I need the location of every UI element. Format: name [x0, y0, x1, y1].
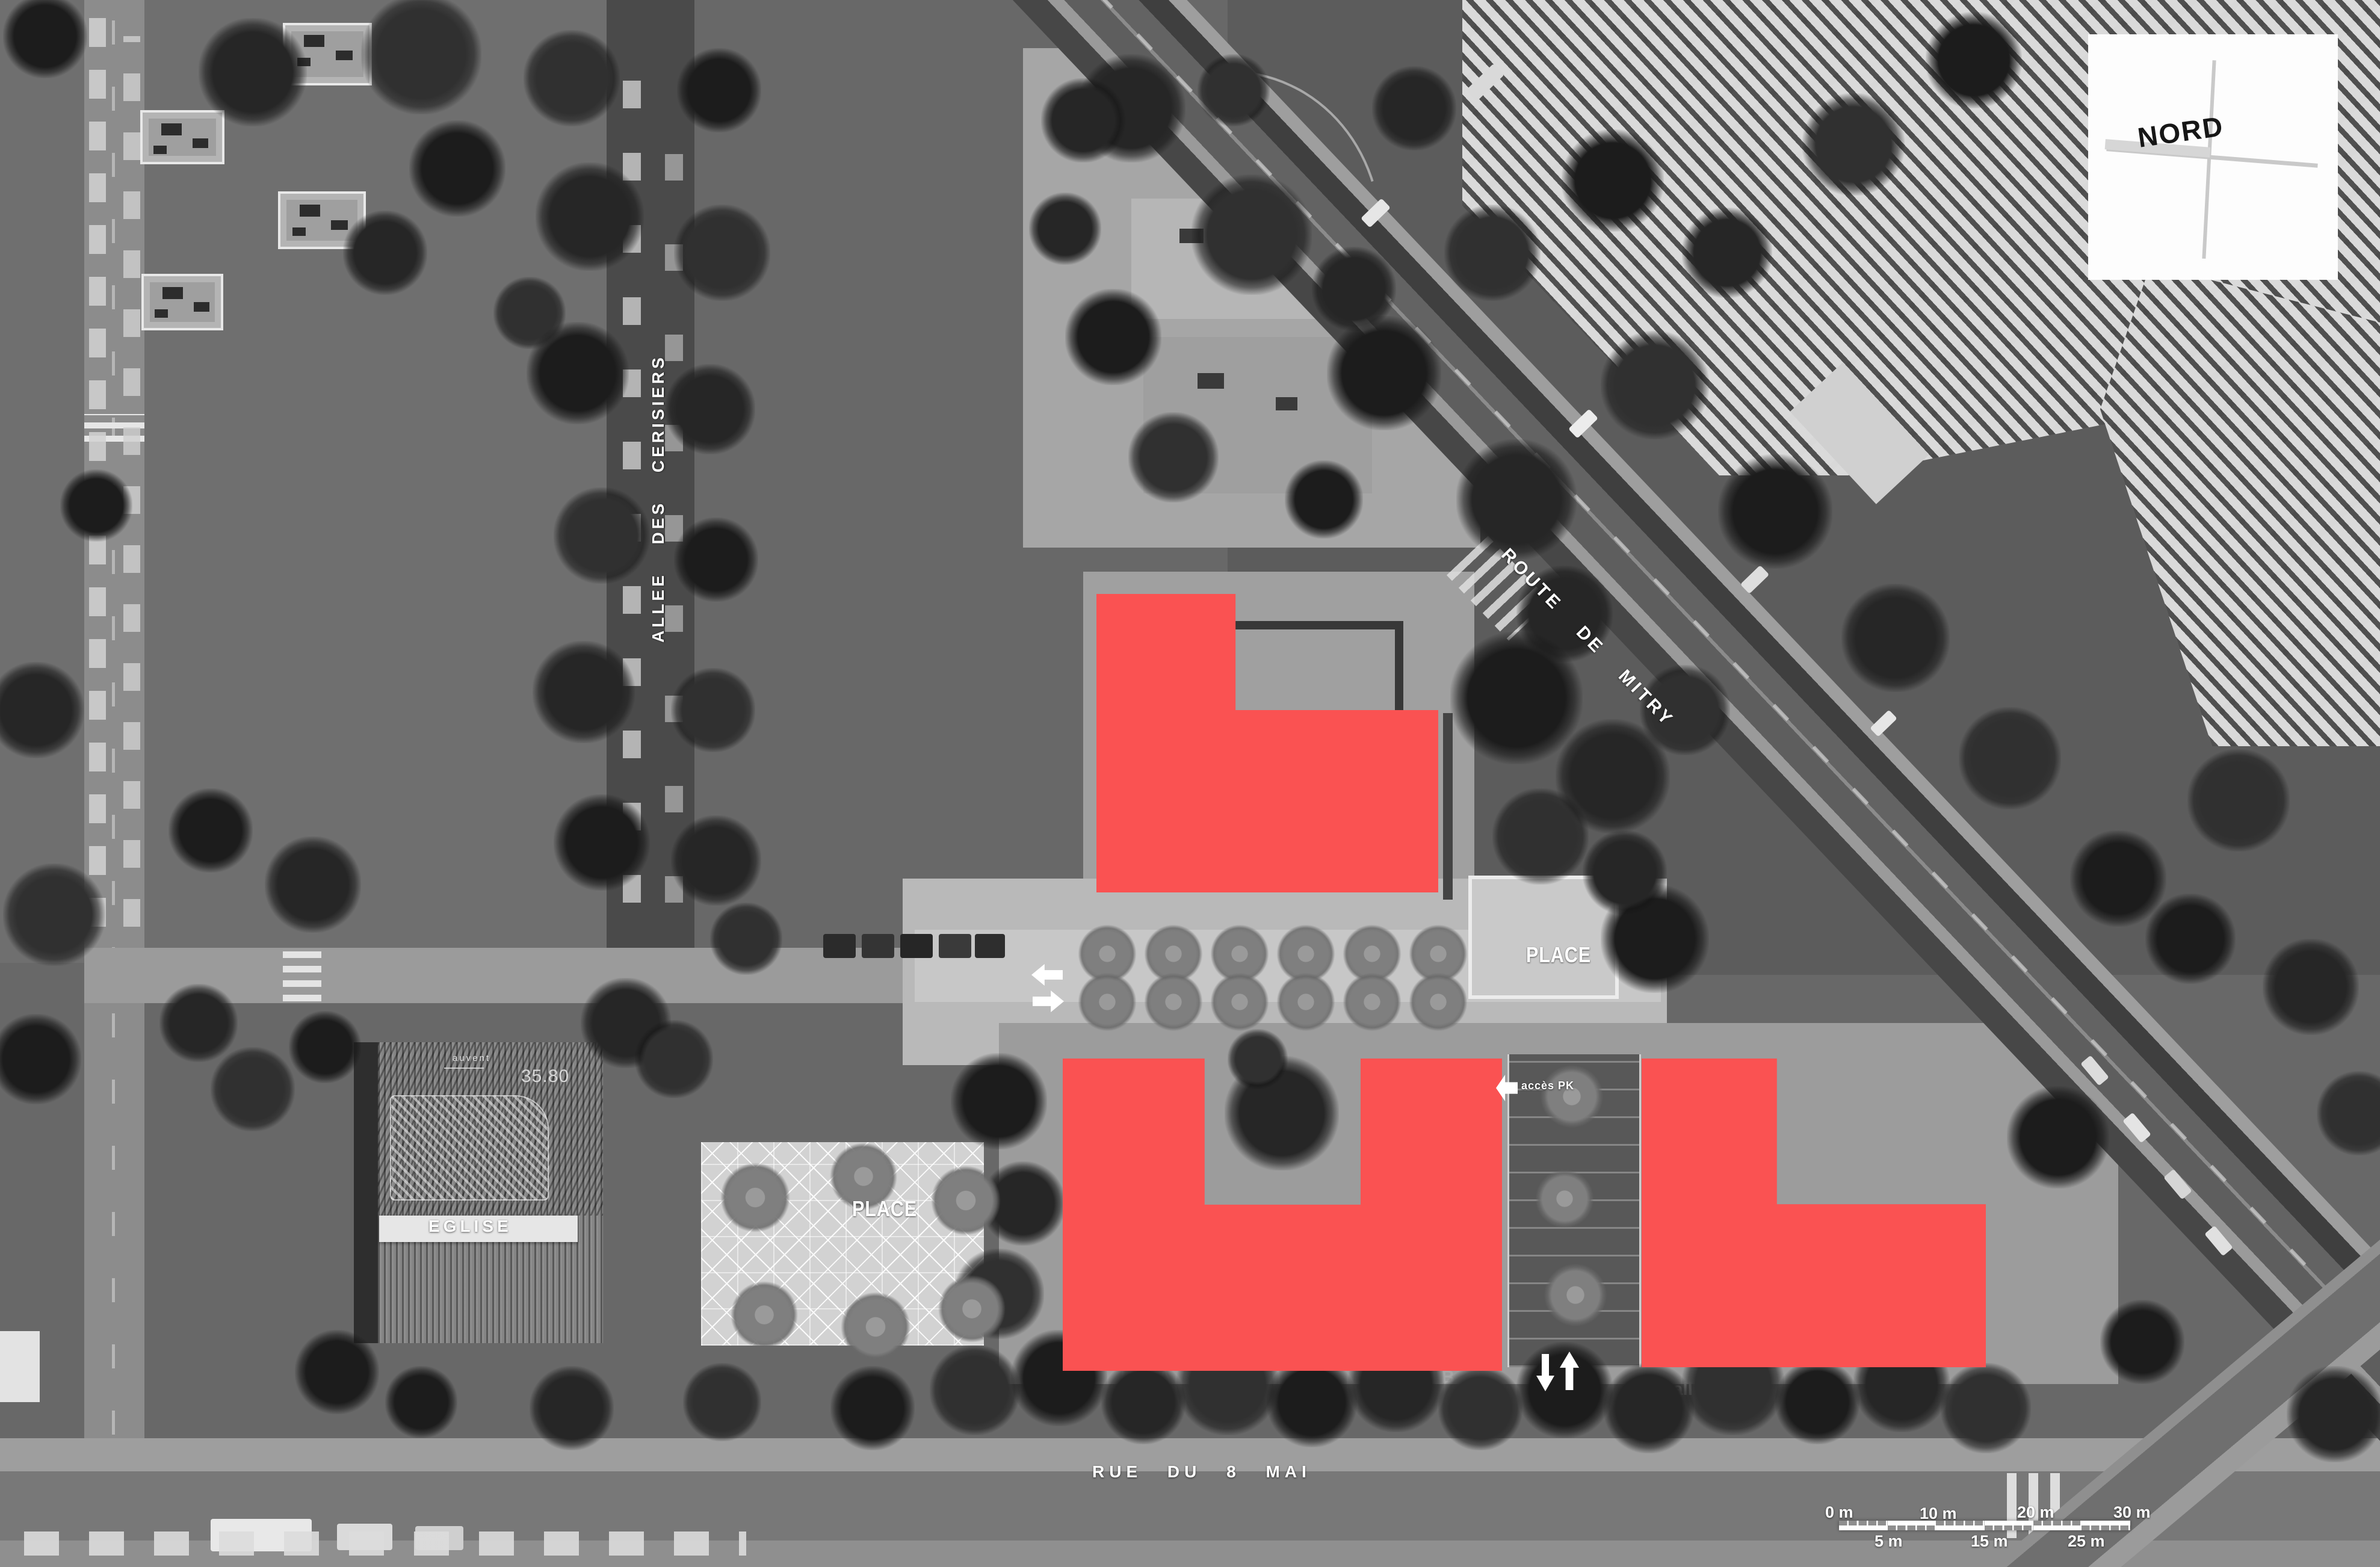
- scale-segment: [1839, 1521, 1888, 1525]
- apartment-block: [278, 191, 366, 249]
- scale-segment: [1936, 1521, 1985, 1525]
- auvent-label: auvent: [453, 1053, 490, 1063]
- tree-canopy-icon: [683, 1363, 761, 1441]
- scale-tick-label: 30 m: [2113, 1503, 2151, 1522]
- place-north-square: [1468, 876, 1619, 999]
- tree-canopy-icon: [830, 1366, 915, 1450]
- scale-tick-label: 25 m: [2068, 1532, 2105, 1551]
- street-eastwest-roadway: [84, 948, 915, 1003]
- place-west-label: PLACE: [852, 1196, 917, 1222]
- scale-segment: [2082, 1525, 2130, 1530]
- acces-pk-label: accès PK: [1521, 1080, 1574, 1092]
- apartment-block: [140, 110, 224, 164]
- tree-canopy-icon: [385, 1366, 457, 1438]
- parked-cars-row: [24, 1531, 746, 1556]
- scale-tick-label: 5 m: [1875, 1532, 1903, 1551]
- crosswalk: [283, 950, 321, 1001]
- tree-canopy-icon: [635, 1020, 713, 1098]
- hall-c-label: Hall C: [1660, 1379, 1711, 1400]
- parked-cars-row: [623, 72, 641, 903]
- tree-canopy-icon: [0, 1014, 81, 1104]
- scale-tick-label: 20 m: [2017, 1503, 2054, 1522]
- scale-bar-strip: [1839, 1521, 2130, 1530]
- street-label-rue-du-8-mai: RUE DU 8 MAI: [1092, 1462, 1311, 1482]
- place-west-plaza: [701, 1142, 984, 1346]
- scale-segment: [2033, 1521, 2082, 1525]
- apartment-block: [141, 274, 223, 330]
- eglise-label: EGLISE: [428, 1217, 512, 1236]
- tree-canopy-icon: [289, 1011, 361, 1083]
- aerial-site-plan: Hall A Hall B Hall C ALLEE DES CERISIERS…: [0, 0, 2380, 1567]
- tree-canopy-icon: [211, 1047, 295, 1131]
- tree-canopy-icon: [530, 1366, 614, 1450]
- auvent-hatch: [390, 1095, 549, 1201]
- playground-patch: [1143, 337, 1372, 493]
- scale-tick-label: 0 m: [1825, 1503, 1853, 1522]
- place-north-label: PLACE: [1526, 942, 1591, 968]
- scale-bar: 0 m 10 m 20 m 30 m 5 m 15 m 25 m: [1823, 1503, 2142, 1554]
- parking-strip: [1507, 1054, 1641, 1367]
- street-left-centerline: [112, 0, 115, 1567]
- parked-cars-row: [89, 12, 106, 927]
- structure-rect: [0, 1331, 40, 1402]
- compass-box: NORD: [2088, 34, 2338, 280]
- church-dark-edge: [354, 1042, 378, 1343]
- scale-segment: [1985, 1525, 2033, 1530]
- apartment-block: [283, 23, 372, 85]
- elevation-label: 35.80: [521, 1066, 569, 1087]
- compass-north-label: NORD: [2136, 110, 2226, 153]
- scale-segment: [1888, 1525, 1936, 1530]
- street-label-allee-des-cerisiers: ALLEE DES CERISIERS: [649, 270, 673, 643]
- auvent-underline: [444, 1068, 484, 1069]
- parked-cars-row: [123, 36, 140, 927]
- scale-tick-label: 15 m: [1971, 1532, 2008, 1551]
- tree-canopy-icon: [2317, 1071, 2380, 1155]
